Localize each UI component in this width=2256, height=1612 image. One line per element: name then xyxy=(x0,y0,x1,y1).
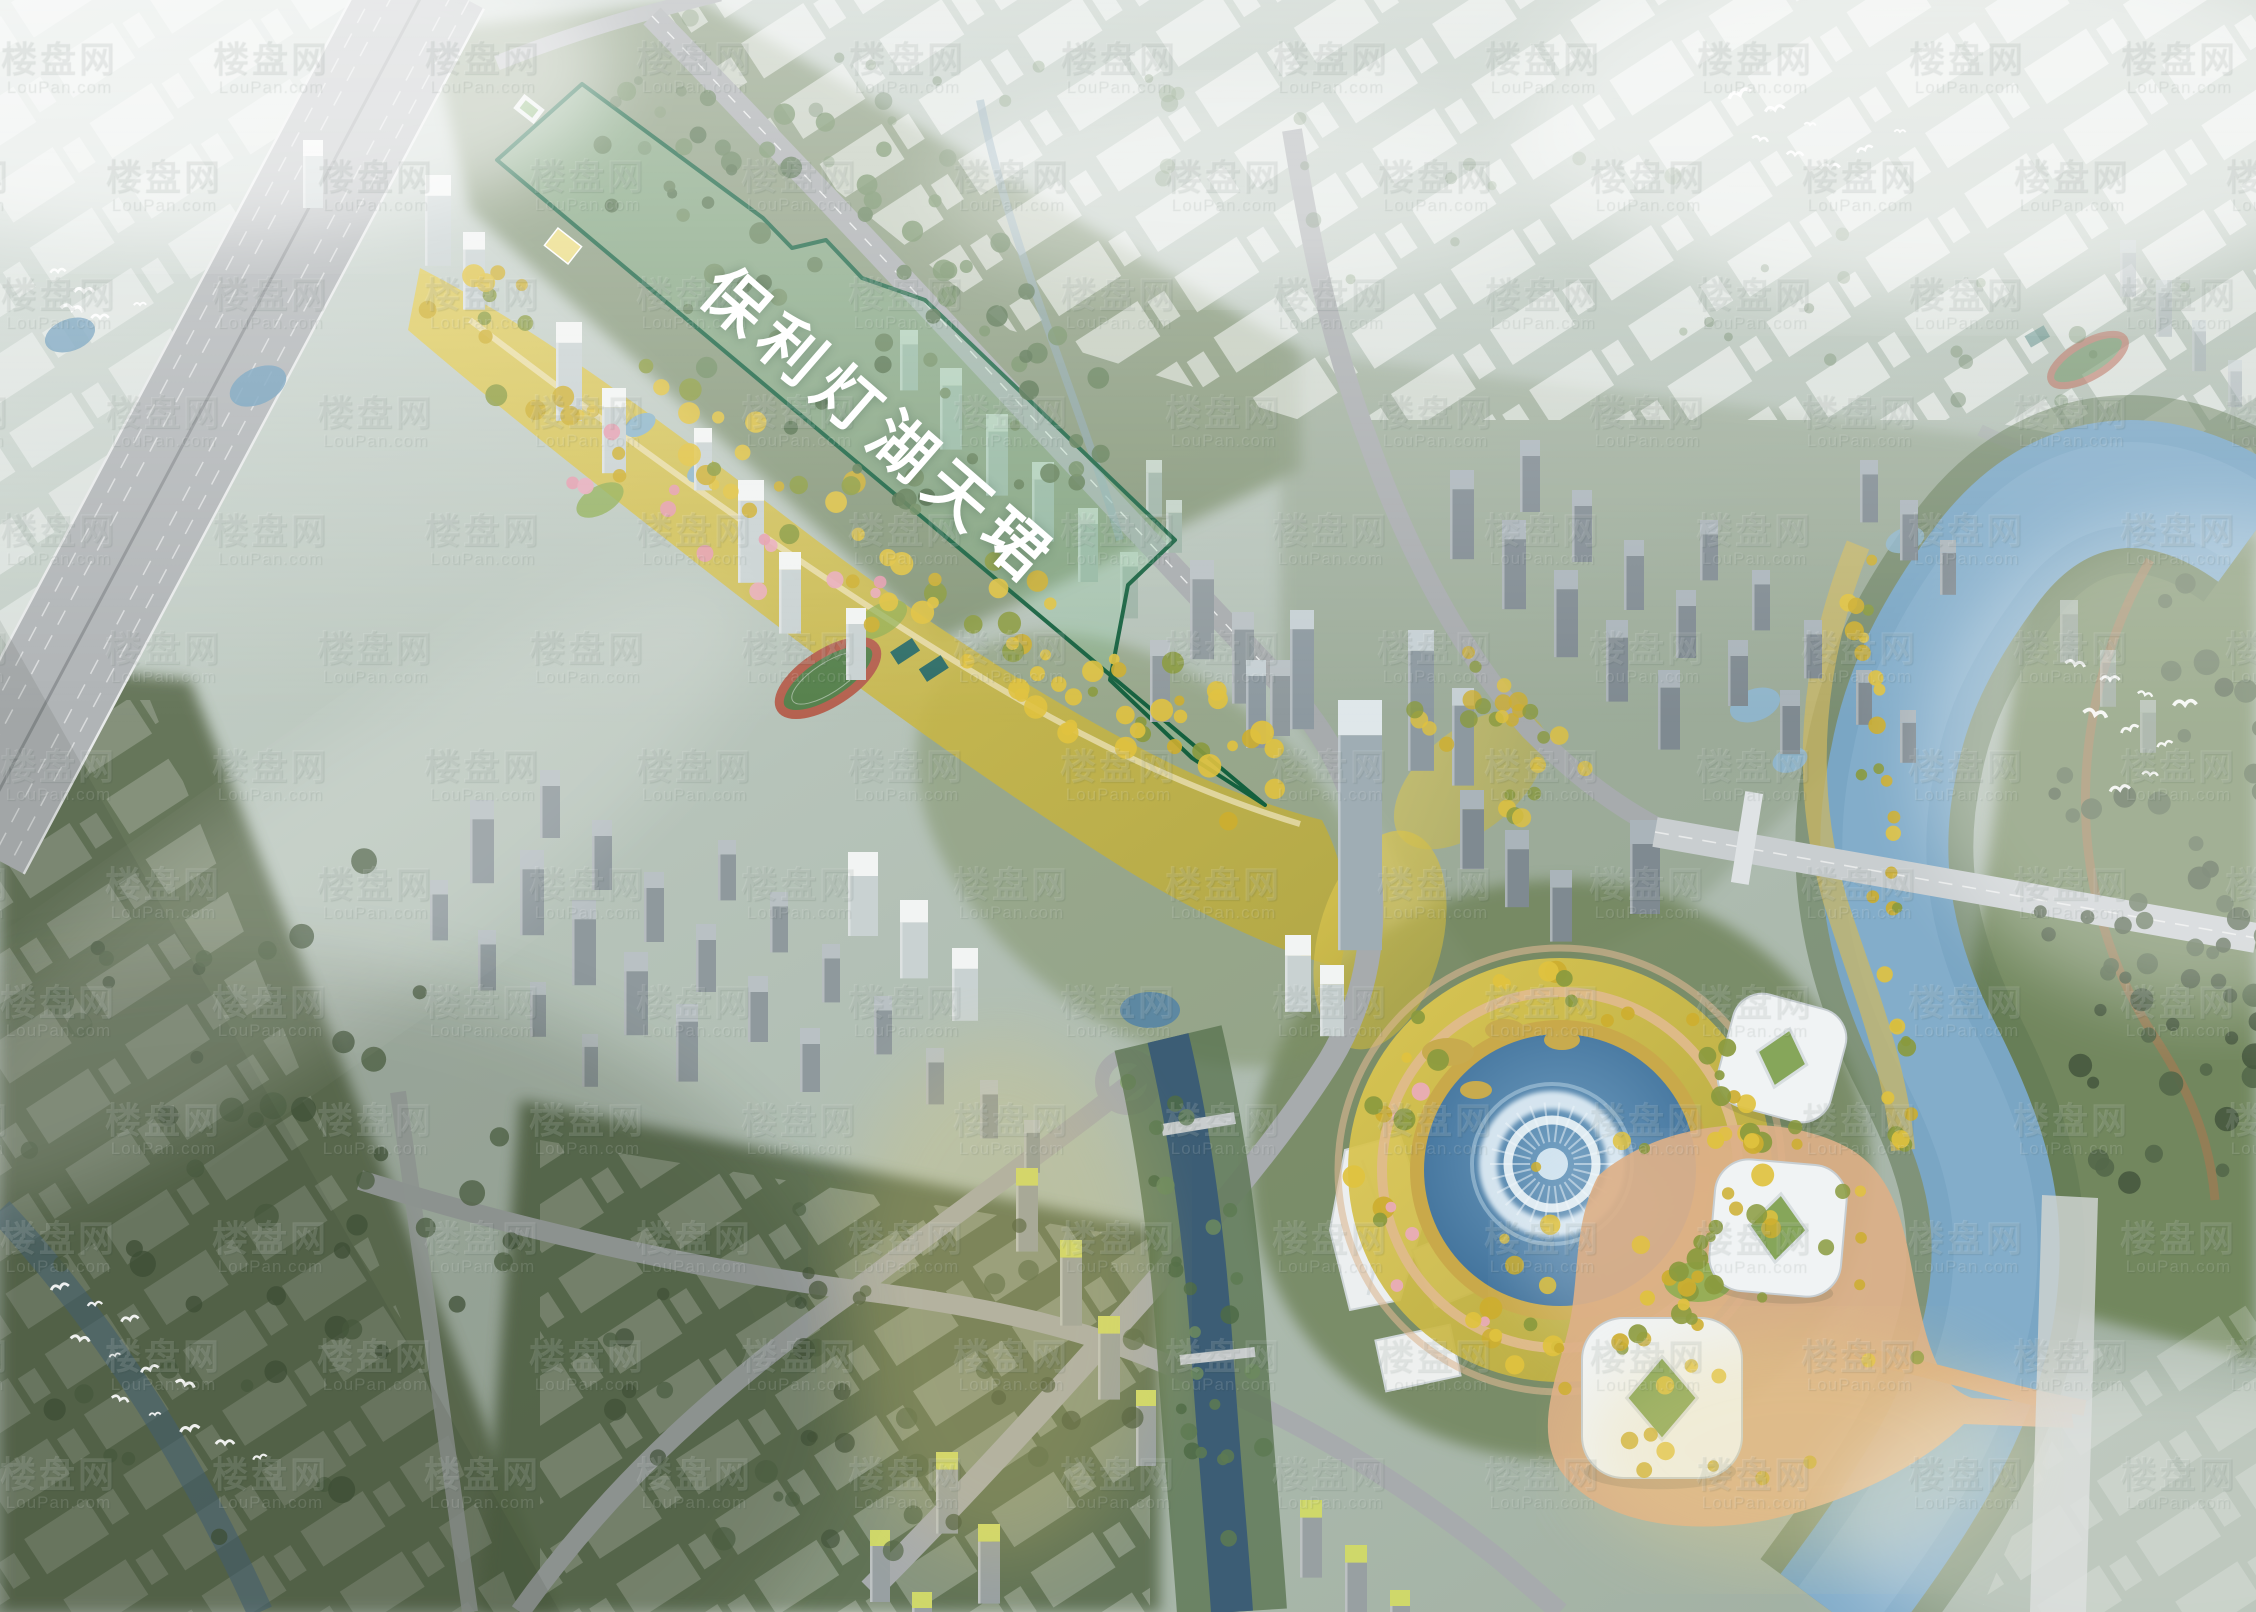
fog-layer xyxy=(0,0,2256,1612)
aerial-render: 楼盘网LouPan.com楼盘网LouPan.com楼盘网LouPan.com楼… xyxy=(0,0,2256,1612)
render-scene xyxy=(0,0,2256,1612)
